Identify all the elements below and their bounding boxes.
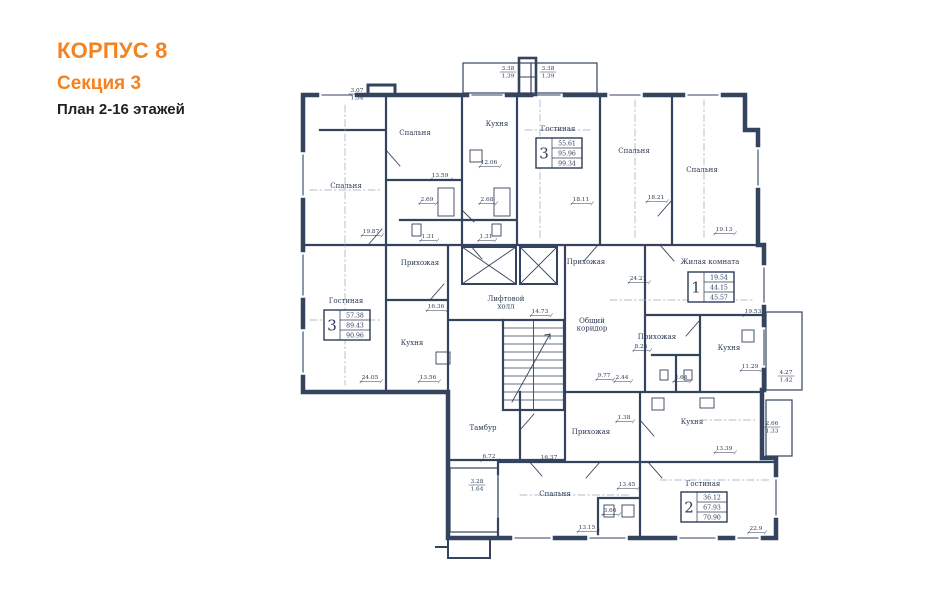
dimension-label: 9.77 xyxy=(598,373,611,379)
entrance-porch xyxy=(436,538,490,558)
room-label: Кухня xyxy=(401,339,424,347)
stairwell xyxy=(503,320,564,410)
apartment-rooms-count: 1 xyxy=(691,279,701,297)
balcony-dimension-label: 4.271.42 xyxy=(780,370,793,384)
balcony-dimension-label: 3.071.54 xyxy=(351,88,364,102)
dimension-label: 12.06 xyxy=(481,160,498,166)
apartment-area-value: 36.12 xyxy=(703,495,721,502)
room-label: Кухня xyxy=(681,418,704,426)
dimension-label: 24.05 xyxy=(362,375,379,381)
room-label: Прихожая xyxy=(401,259,440,267)
dimension-label: 3.66 xyxy=(604,508,617,514)
balcony-dimension-label: 2.661.33 xyxy=(766,421,779,435)
apartment-area-value: 89.43 xyxy=(346,323,364,330)
dimension-label: 24.21 xyxy=(630,276,647,282)
dimension-label: 1.38 xyxy=(618,415,631,421)
dimension-label: 22.9 xyxy=(750,526,763,532)
apartment-area-value: 19.54 xyxy=(710,275,728,282)
room-label: Гостиная xyxy=(329,297,364,305)
balcony-dimension-label: 3.381.39 xyxy=(502,66,515,80)
balcony-dimension-label: 3.281.64 xyxy=(471,479,484,493)
apartment-info-box: 119.5444.1545.57 xyxy=(688,272,734,302)
dimension-label: 6.72 xyxy=(483,454,496,460)
room-label: Спальня xyxy=(539,490,571,498)
dimension-label: 13.15 xyxy=(579,525,596,531)
dimension-label: 11.29 xyxy=(742,364,759,370)
apartment-rooms-count: 3 xyxy=(327,317,337,335)
dimension-label: 16.36 xyxy=(428,304,445,310)
room-label: Прихожая xyxy=(567,258,606,266)
dimension-label: 1.31 xyxy=(422,234,435,240)
apartment-area-value: 57.38 xyxy=(346,313,364,320)
apartment-info-box: 357.3889.4390.96 xyxy=(324,310,370,340)
dimension-label: 1.31 xyxy=(480,234,493,240)
apartment-info-box: 236.1267.9370.90 xyxy=(681,492,727,522)
room-label: Общийкоридор xyxy=(577,317,608,333)
room-label: Гостиная xyxy=(541,125,576,133)
dimension-label: 13.59 xyxy=(432,173,449,179)
dimension-label: 8.25 xyxy=(635,344,648,350)
dimension-label: 13.56 xyxy=(420,375,437,381)
apartment-area-value: 99.34 xyxy=(558,161,576,168)
dimension-label: 18.21 xyxy=(648,195,665,201)
dimension-label: 2.69 xyxy=(421,197,434,203)
room-label: Спальня xyxy=(399,129,431,137)
dimension-label: 18.11 xyxy=(573,197,590,203)
apartment-info-box: 355.6195.9699.34 xyxy=(536,138,582,168)
room-label: Прихожая xyxy=(638,333,677,341)
dimension-label: 19.87 xyxy=(363,229,380,235)
dimension-label: 14.73 xyxy=(532,309,549,315)
apartment-area-value: 67.93 xyxy=(703,505,721,512)
apartment-area-value: 95.96 xyxy=(558,151,576,158)
room-label: Лифтовойхолл xyxy=(488,295,525,311)
dimension-label: 16.37 xyxy=(541,455,558,461)
apartment-area-value: 55.61 xyxy=(558,141,576,148)
room-label: Жилая комната xyxy=(681,258,740,266)
room-label: Спальня xyxy=(618,147,650,155)
room-label: Спальня xyxy=(686,166,718,174)
dimension-label: 13.39 xyxy=(716,446,733,452)
floorplan-svg: СпальняКухняСпальняГостинаяСпальняСпальн… xyxy=(0,0,941,600)
dimension-label: 13.45 xyxy=(619,482,636,488)
room-label: Спальня xyxy=(330,182,362,190)
dimension-label: 19.13 xyxy=(716,227,733,233)
room-label: Кухня xyxy=(486,120,509,128)
dimension-label: 2.44 xyxy=(616,375,629,381)
apartment-area-value: 70.90 xyxy=(703,515,721,522)
apartment-area-value: 90.96 xyxy=(346,333,364,340)
apartment-rooms-count: 2 xyxy=(684,499,694,517)
dimension-label: 2.68 xyxy=(481,197,494,203)
room-label: Гостиная xyxy=(686,480,721,488)
apartment-area-value: 45.57 xyxy=(710,295,728,302)
balcony-dimension-label: 3.381.39 xyxy=(542,66,555,80)
room-label: Кухня xyxy=(718,344,741,352)
dimension-label: 19.53 xyxy=(745,309,762,315)
dimension-label: 2.64 xyxy=(675,375,688,381)
apartment-rooms-count: 3 xyxy=(539,145,549,163)
room-label: Прихожая xyxy=(572,428,611,436)
page: КОРПУС 8 Секция 3 План 2-16 этажей xyxy=(0,0,941,600)
apartment-area-value: 44.15 xyxy=(710,285,728,292)
room-label: Тамбур xyxy=(469,424,497,432)
